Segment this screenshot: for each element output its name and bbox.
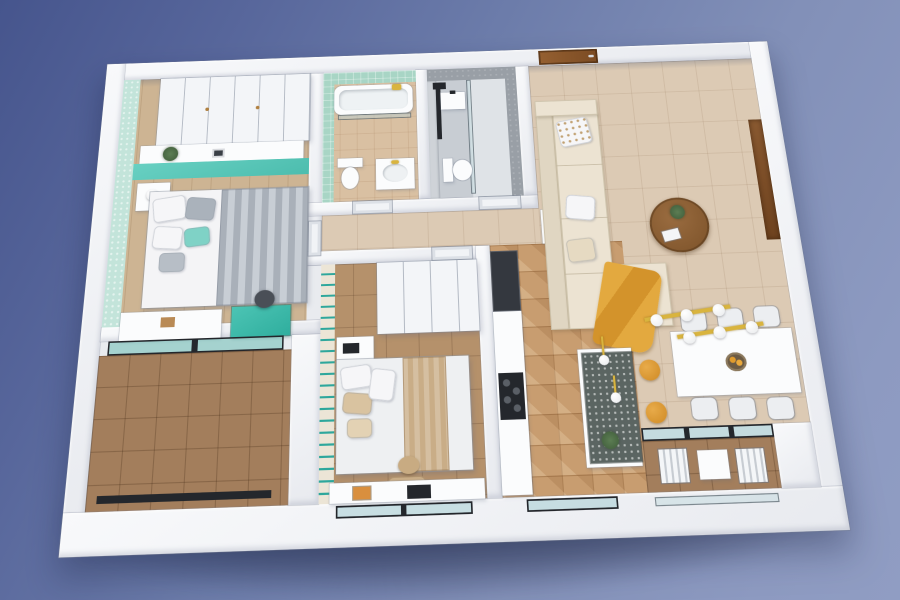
scene-3d-floor-plan [0, 0, 900, 600]
bath-mint-wall-top [323, 70, 416, 85]
master-pillow-white [151, 226, 184, 250]
sofa-cushion-white [565, 194, 595, 220]
kitchen-appliance-column [490, 250, 522, 312]
master-vanity-desk-teal [231, 305, 291, 337]
master-pillow-teal [184, 226, 210, 248]
balcony-left-railing [96, 490, 271, 504]
bath2-washbasin [440, 92, 465, 110]
wall-balconyleft-right [288, 334, 320, 505]
master-pillow-grey [184, 197, 217, 221]
folding-chair [735, 448, 768, 483]
bath2-grey-wall-top [427, 67, 516, 82]
bed2-pillow-white [368, 368, 397, 402]
bath-washbasin [376, 158, 415, 190]
bed2-tan-blanket [403, 356, 450, 472]
bed2-pillow-white [339, 363, 373, 391]
door-frame-mullion [191, 338, 198, 353]
burner [503, 379, 511, 387]
plan-perspective-wrap [76, 14, 813, 539]
room-bathroom-mint [322, 70, 419, 203]
nightstand-radio [343, 343, 359, 354]
bath2-tap [450, 90, 456, 94]
dresser-decor-box [160, 317, 175, 328]
bathtub-basin [339, 88, 408, 111]
fruit-orange [736, 359, 743, 365]
bathtub-glass-screen [338, 112, 411, 120]
bath-mint-wall-left [322, 73, 335, 203]
gold-shower-fixture [392, 84, 401, 90]
cooktop [498, 372, 526, 420]
window-mullion [401, 504, 407, 517]
room-bathroom-grey [427, 67, 524, 199]
gold-tap [391, 160, 399, 164]
dining-chair-bottom [691, 397, 719, 419]
room-bedroom2 [319, 259, 488, 504]
balcony-left [85, 335, 292, 512]
door-master-bedroom [308, 221, 320, 255]
door-bedroom2 [432, 246, 472, 260]
shelf-photo-frame [212, 149, 225, 158]
bedroom2-striped-accent-wall [319, 264, 336, 504]
door-bathroom-grey [479, 196, 521, 209]
door-bathroom-mint [353, 200, 392, 213]
bath-toilet-bowl [341, 167, 358, 189]
room-master-bedroom [102, 74, 311, 328]
burner [504, 396, 512, 404]
entrance-door-handle [588, 55, 594, 58]
folding-chair [658, 449, 690, 484]
bath-toilet [338, 158, 363, 168]
bar-stool [638, 359, 661, 381]
bath2-toilet-tank [443, 158, 453, 182]
bed2-pillow-beige-small [347, 418, 372, 438]
basin-bowl [383, 163, 408, 182]
desk-book [353, 487, 370, 500]
balcony-table [697, 449, 731, 479]
master-bed [142, 187, 309, 309]
window-mullion [728, 425, 735, 438]
dining-chair-bottom [728, 397, 756, 419]
sofa-armrest [534, 99, 597, 117]
apartment-slab [59, 41, 850, 557]
master-wardrobe [156, 74, 311, 146]
balcony-right [641, 424, 782, 493]
burner [513, 387, 521, 395]
bedroom2-wardrobe [377, 259, 480, 334]
bar-stool [645, 401, 668, 423]
window-mullion [683, 427, 690, 440]
master-pillow-white [152, 194, 187, 223]
desk-laptop [407, 484, 431, 498]
master-duvet-grey-striped [216, 187, 309, 306]
master-pillow-grey-small [158, 252, 185, 272]
desk-chair [398, 456, 420, 475]
dining-chair-bottom [766, 397, 795, 419]
burner [513, 404, 521, 412]
black-shower-head [433, 82, 446, 89]
